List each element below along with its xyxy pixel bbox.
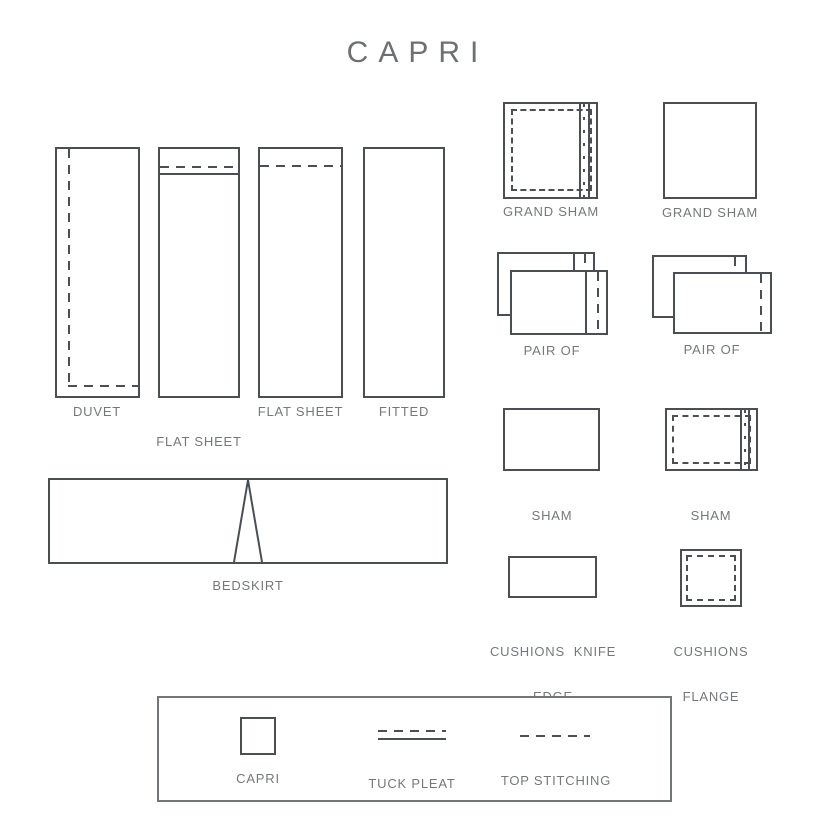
legend-top-stitching-dash (520, 735, 590, 737)
flat-sheet-tuck-pleat-diagram (158, 147, 240, 398)
duvet-top-stitching-vertical (68, 149, 70, 386)
grand-sham-band-line-left (579, 104, 581, 197)
pillowcase-band-line (585, 272, 587, 333)
flat-sheet-tuck-pleat-line (160, 173, 238, 175)
sham-band-line-left (740, 410, 742, 469)
fitted-sheet-diagram (363, 147, 445, 398)
legend-tuck-pleat-line (378, 738, 446, 740)
legend-capri-label: CAPRI (218, 771, 298, 786)
duvet-label: DUVET (47, 404, 147, 419)
cushion-flange-stitching (686, 555, 736, 601)
sham-knife-edge-diagram (503, 408, 600, 471)
legend-top-stitching-label: TOP STITCHING (482, 773, 630, 788)
sham-band-dots (744, 410, 746, 469)
grand-sham-plain-diagram (663, 102, 757, 199)
grand-sham-band-line-right (588, 104, 590, 197)
pair-of-right-label: PAIR OF (662, 342, 762, 357)
grand-sham-plain-label: GRAND SHAM (655, 205, 765, 220)
sham-flange-diagram (665, 408, 758, 471)
page-title: CAPRI (0, 36, 825, 70)
pillowcase-stitch-dash (597, 272, 599, 333)
cushion-flange-diagram (680, 549, 742, 607)
legend-tuck-pleat-dash (378, 730, 446, 732)
capri-spec-sheet: CAPRI DUVET FLAT SHEET TUCK PLEAT FLAT S… (0, 0, 825, 825)
legend-capri-swatch (240, 717, 276, 755)
duvet-diagram (55, 147, 140, 398)
flat-sheet-label: FLAT SHEET (249, 404, 352, 419)
legend-box: CAPRI TUCK PLEAT TOP STITCHING (157, 696, 672, 802)
pillowcase-stitch-dash (760, 274, 762, 332)
flat-sheet-diagram (258, 147, 343, 398)
bedskirt-diagram (48, 478, 448, 564)
legend-tuck-pleat-label: TUCK PLEAT (342, 776, 482, 791)
sham-band-line-right (748, 410, 750, 469)
duvet-top-stitching-horizontal (68, 385, 138, 387)
pillowcase-front-right (673, 272, 772, 334)
flat-sheet-top-stitching (160, 166, 238, 168)
flat-sheet-top-stitching (260, 165, 341, 167)
grand-sham-flange-label: GRAND SHAM (496, 204, 606, 219)
bedskirt-label: BEDSKIRT (48, 578, 448, 593)
pair-of-left-label: PAIR OF (502, 343, 602, 358)
bedskirt-kick-pleat (50, 480, 446, 562)
pillowcase-front-left (510, 270, 608, 335)
grand-sham-band-dots (583, 104, 585, 197)
grand-sham-flange-diagram (503, 102, 598, 199)
fitted-label: FITTED (363, 404, 445, 419)
cushion-knife-edge-diagram (508, 556, 597, 598)
